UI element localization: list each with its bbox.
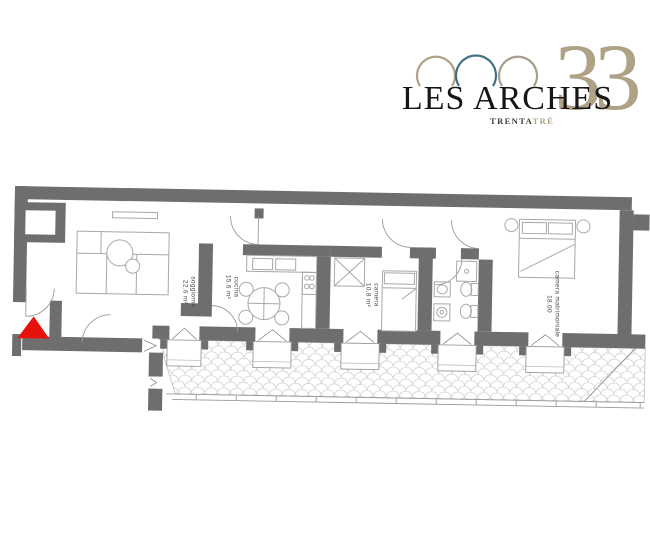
wardrobe — [334, 258, 365, 287]
dining-table — [239, 282, 290, 325]
room-area: 18.00 — [544, 261, 552, 347]
room-area: 15.6 m² — [223, 244, 231, 330]
tv-sideboard — [113, 212, 158, 219]
wall-corridor-1 — [243, 244, 331, 257]
toilet — [461, 282, 479, 296]
room-name: camera — [371, 252, 379, 338]
page: 33 LES ARCHES TRENTATRÉ — [0, 0, 650, 552]
wall-right — [617, 210, 633, 337]
room-label-soggiorno: soggiorno 22.6 m² — [180, 249, 197, 335]
stove — [302, 272, 316, 294]
room-label-camera-matrimoniale: camera matrimoniale 18.00 — [544, 261, 561, 347]
wall-right-notch — [633, 214, 649, 230]
room-area: 10.8 m² — [363, 252, 371, 338]
door-camera — [382, 219, 411, 248]
room-area: 22.6 m² — [180, 249, 188, 335]
wall-southwest-a — [149, 352, 163, 376]
wall-bath-west — [417, 247, 433, 330]
wall-pillar — [255, 208, 264, 218]
shower — [456, 261, 476, 281]
door-kitchen — [230, 216, 259, 245]
room-name: camera matrimoniale — [552, 261, 560, 347]
coffee-tables — [107, 240, 141, 274]
room-name: soggiorno — [188, 249, 196, 335]
niche-opening — [25, 210, 55, 235]
wall-top — [15, 186, 632, 210]
sink-basin — [276, 259, 296, 270]
wall-bath-east — [477, 260, 492, 332]
wall-southwest-b — [148, 388, 162, 410]
roof-tiles — [162, 340, 645, 403]
bidet — [460, 304, 478, 318]
room-label-cucina: cucina 15.6 m² — [223, 244, 240, 330]
entrance-arrow-icon — [17, 316, 49, 339]
room-name: cucina — [231, 244, 239, 330]
single-bed — [381, 271, 416, 332]
wall-kitchen-east — [316, 257, 331, 329]
room-label-camera: camera 10.8 m² — [363, 252, 380, 338]
wall-vestibule — [49, 301, 62, 339]
wall-kitchen-west — [198, 243, 213, 305]
sink-basin — [253, 258, 273, 269]
door-camera-matrimoniale — [451, 220, 480, 249]
wall-corridor-4 — [461, 248, 479, 259]
washing-machine — [434, 304, 450, 321]
